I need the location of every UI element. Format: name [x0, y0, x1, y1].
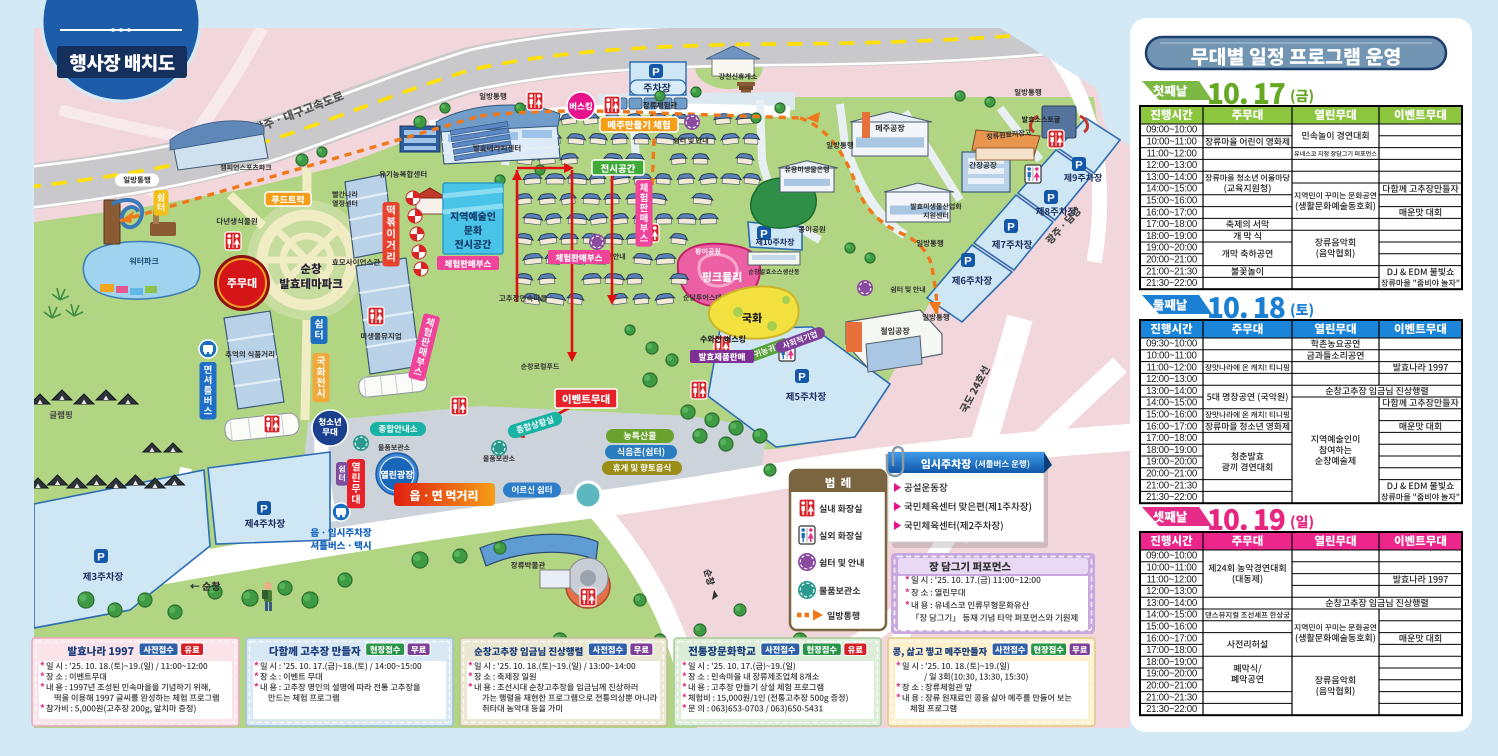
svg-text:17:00~18:00: 17:00~18:00: [1146, 219, 1198, 230]
svg-text:11:00~12:00: 11:00~12:00: [1146, 362, 1197, 373]
svg-text:17:00~18:00: 17:00~18:00: [1146, 433, 1198, 444]
svg-text:16:00~17:00: 16:00~17:00: [1146, 421, 1198, 432]
svg-text:21:30~22:00: 21:30~22:00: [1146, 492, 1198, 503]
svg-text:21:30~22:00: 21:30~22:00: [1146, 704, 1198, 715]
svg-text:13:00~14:00: 13:00~14:00: [1146, 386, 1198, 397]
svg-text:16:00~17:00: 16:00~17:00: [1146, 207, 1198, 218]
svg-text:12:00~13:00: 12:00~13:00: [1146, 586, 1198, 597]
svg-text:10:00~11:00: 10:00~11:00: [1146, 351, 1197, 362]
svg-text:21:00~21:30: 21:00~21:30: [1146, 480, 1198, 491]
svg-text:20:00~21:00: 20:00~21:00: [1146, 681, 1198, 692]
svg-text:P: P: [798, 371, 806, 383]
svg-text:11:00~12:00: 11:00~12:00: [1146, 574, 1197, 585]
svg-text:P: P: [97, 551, 105, 563]
svg-text:14:00~15:00: 14:00~15:00: [1146, 398, 1198, 409]
svg-text:P: P: [1075, 159, 1083, 171]
svg-text:14:00~15:00: 14:00~15:00: [1146, 184, 1198, 195]
svg-text:17:00~18:00: 17:00~18:00: [1146, 645, 1198, 656]
svg-text:12:00~13:00: 12:00~13:00: [1146, 374, 1198, 385]
svg-text:10:00~11:00: 10:00~11:00: [1146, 137, 1197, 148]
svg-text:P: P: [964, 255, 972, 267]
svg-text:12:00~13:00: 12:00~13:00: [1146, 160, 1198, 171]
svg-text:P: P: [1007, 221, 1015, 233]
svg-text:P: P: [260, 503, 268, 515]
svg-text:20:00~21:00: 20:00~21:00: [1146, 469, 1198, 480]
svg-text:09:00~10:00: 09:00~10:00: [1146, 125, 1198, 136]
svg-text:15:00~16:00: 15:00~16:00: [1146, 196, 1198, 207]
svg-text:15:00~16:00: 15:00~16:00: [1146, 410, 1198, 421]
svg-text:20:00~21:00: 20:00~21:00: [1146, 255, 1198, 266]
svg-text:18:00~19:00: 18:00~19:00: [1146, 657, 1198, 668]
svg-text:19:00~20:00: 19:00~20:00: [1146, 457, 1198, 468]
svg-text:10:00~11:00: 10:00~11:00: [1146, 563, 1197, 574]
svg-text:P: P: [1047, 192, 1055, 204]
svg-text:09:00~10:00: 09:00~10:00: [1146, 551, 1198, 562]
svg-text:19:00~20:00: 19:00~20:00: [1146, 243, 1198, 254]
svg-text:16:00~17:00: 16:00~17:00: [1146, 633, 1198, 644]
svg-text:21:00~21:30: 21:00~21:30: [1146, 692, 1198, 703]
svg-text:11:00~12:00: 11:00~12:00: [1146, 148, 1197, 159]
svg-text:21:30~22:00: 21:30~22:00: [1146, 278, 1198, 289]
svg-text:19:00~20:00: 19:00~20:00: [1146, 669, 1198, 680]
svg-text:18:00~19:00: 18:00~19:00: [1146, 445, 1198, 456]
svg-text:13:00~14:00: 13:00~14:00: [1146, 598, 1198, 609]
svg-text:13:00~14:00: 13:00~14:00: [1146, 172, 1198, 183]
svg-text:18:00~19:00: 18:00~19:00: [1146, 231, 1198, 242]
svg-text:14:00~15:00: 14:00~15:00: [1146, 610, 1198, 621]
svg-text:09:30~10:00: 09:30~10:00: [1146, 339, 1198, 350]
svg-text:21:00~21:30: 21:00~21:30: [1146, 266, 1198, 277]
svg-text:P: P: [652, 66, 660, 78]
svg-text:15:00~16:00: 15:00~16:00: [1146, 622, 1198, 633]
